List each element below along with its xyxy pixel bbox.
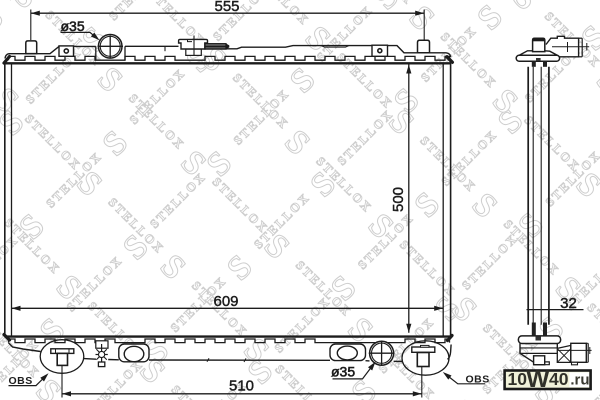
- svg-text:40: 40: [549, 369, 569, 389]
- svg-text:S: S: [506, 0, 546, 18]
- svg-text:STELLOX: STELLOX: [521, 113, 583, 175]
- svg-text:510: 510: [229, 377, 254, 394]
- svg-text:STELLOX: STELLOX: [0, 129, 1, 191]
- svg-text:STELLOX: STELLOX: [397, 237, 459, 299]
- svg-text:S: S: [0, 0, 11, 39]
- svg-text:STELLOX: STELLOX: [251, 0, 313, 28]
- svg-text:STELLOX: STELLOX: [459, 231, 521, 293]
- svg-text:STELLOX: STELLOX: [147, 170, 209, 232]
- svg-text:W: W: [526, 366, 550, 393]
- svg-text:STELLOX: STELLOX: [272, 294, 334, 356]
- svg-text:STELLOX: STELLOX: [335, 107, 397, 169]
- svg-text:555: 555: [214, 0, 239, 15]
- svg-text:32: 32: [560, 295, 577, 312]
- svg-text:ø35: ø35: [331, 364, 355, 380]
- svg-text:STELLOX: STELLOX: [22, 112, 84, 174]
- svg-text:10: 10: [508, 369, 528, 389]
- svg-text:609: 609: [213, 293, 238, 310]
- svg-text:500: 500: [390, 187, 407, 212]
- svg-text:ø35: ø35: [61, 18, 85, 34]
- svg-text:STELLOX: STELLOX: [209, 175, 271, 237]
- svg-text:.ru: .ru: [570, 372, 589, 389]
